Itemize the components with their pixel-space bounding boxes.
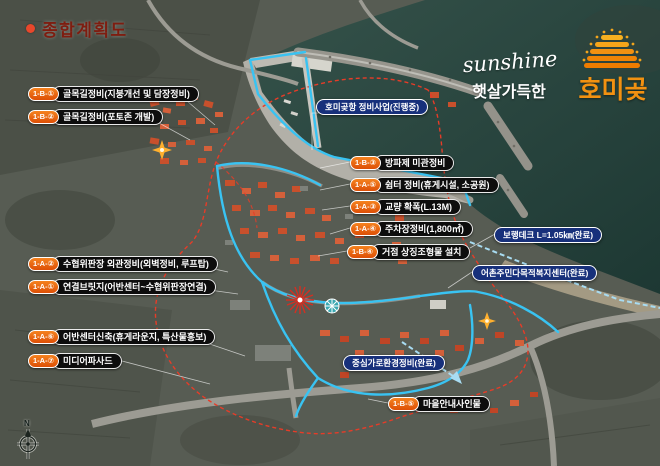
project-code-badge: 1-A-⑦ <box>28 354 59 368</box>
project-label-text: 어반센터신축(휴게라운지, 특산물홍보) <box>52 329 215 345</box>
map-title-block: 종합계획도 <box>26 16 128 41</box>
project-code-badge: 1-B-④ <box>347 245 378 259</box>
status-label-boardwalk: 보행데크 L=1.05㎞(완료) <box>494 227 602 243</box>
ferris-starburst-icon <box>286 286 314 314</box>
page-title: 종합계획도 <box>42 16 128 41</box>
pinwheel-icon <box>325 299 339 313</box>
project-label-rest-area: 1-A-⑤ 쉼터 정비(휴게시설, 소공원) <box>350 177 499 193</box>
project-label-text: 쉼터 정비(휴게시설, 소공원) <box>374 177 499 193</box>
project-label-fishmarket-facade: 1-A-② 수협위판장 외관정비(외벽정비, 루프탑) <box>28 256 218 272</box>
project-label-text: 미디어파사드 <box>52 353 122 369</box>
project-label-text: 마을안내사인물 <box>412 396 490 412</box>
status-label-main-street: 중심가로환경정비(완료) <box>343 355 445 371</box>
project-code-badge: 1-A-⑤ <box>350 178 381 192</box>
project-label-breakwater: 1-B-③ 방파제 미관정비 <box>350 155 454 171</box>
project-label-text: 골목길정비(지붕개선 및 담장정비) <box>52 86 199 102</box>
project-label-parking: 1-A-④ 주차장정비(1,800㎡) <box>350 221 473 237</box>
project-code-badge: 1-A-② <box>28 257 59 271</box>
project-label-bridge-widening: 1-A-③ 교량 확폭(L.13M) <box>350 199 461 215</box>
project-code-badge: 1-A-④ <box>350 222 381 236</box>
project-label-text: 골목길정비(포토존 개발) <box>52 109 163 125</box>
project-code-badge: 1-A-③ <box>350 200 381 214</box>
compass-north-label: N <box>24 419 30 428</box>
project-label-urban-center: 1-A-⑥ 어반센터신축(휴게라운지, 특산물홍보) <box>28 329 215 345</box>
project-label-text: 수협위판장 외관정비(외벽정비, 루프탑) <box>52 256 218 272</box>
project-code-badge: 1-B-① <box>28 87 59 101</box>
project-label-bridge-link: 1-A-① 연결브릿지(어반센터~수협위판장연결) <box>28 279 216 295</box>
project-label-landmark-sculpture: 1-B-④ 거점 상징조형물 설치 <box>347 244 470 260</box>
logo-script-text: sunshine <box>449 46 570 78</box>
project-label-village-signage: 1-B-⑤ 마을안내사인물 <box>388 396 490 412</box>
project-code-badge: 1-A-① <box>28 280 59 294</box>
project-label-alley-photozone: 1-B-② 골목길정비(포토존 개발) <box>28 109 163 125</box>
project-label-text: 연결브릿지(어반센터~수협위판장연결) <box>52 279 216 295</box>
title-bullet-icon <box>26 24 35 33</box>
project-code-badge: 1-B-⑤ <box>388 397 419 411</box>
project-label-text: 방파제 미관정비 <box>374 155 454 171</box>
project-code-badge: 1-B-③ <box>350 156 381 170</box>
brand-logo: sunshine 햇살가득한 호미곶 <box>422 18 652 113</box>
logo-tagline: 햇살가득한 <box>444 78 574 102</box>
plan-map-canvas: 종합계획도 sunshine 햇살가득한 호미곶 1-B-① 골목길정비(지붕개… <box>0 0 660 466</box>
sun-icon <box>580 26 644 70</box>
project-code-badge: 1-A-⑥ <box>28 330 59 344</box>
project-label-text: 거점 상징조형물 설치 <box>371 244 471 260</box>
status-label-welfare-center: 어촌주민다목적복지센터(완료) <box>472 265 597 281</box>
project-label-alley-roof: 1-B-① 골목길정비(지붕개선 및 담장정비) <box>28 86 199 102</box>
status-label-harbor-project: 호미곶항 정비사업(진행중) <box>316 99 428 115</box>
logo-place-name: 호미곶 <box>574 70 652 106</box>
project-label-media-facade: 1-A-⑦ 미디어파사드 <box>28 353 122 369</box>
project-code-badge: 1-B-② <box>28 110 59 124</box>
project-label-text: 주차장정비(1,800㎡) <box>374 221 473 237</box>
project-label-text: 교량 확폭(L.13M) <box>374 199 461 215</box>
